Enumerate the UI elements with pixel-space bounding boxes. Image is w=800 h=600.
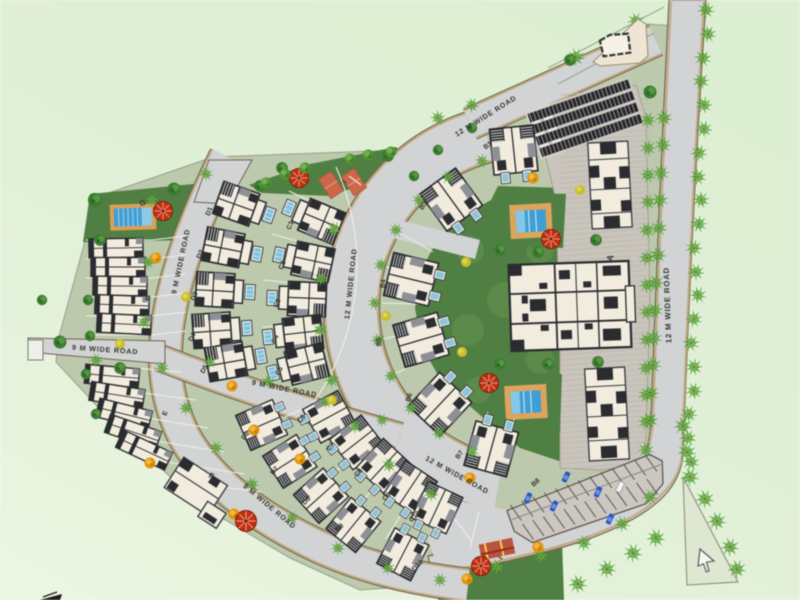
svg-text:B5: B5 xyxy=(376,337,383,346)
svg-text:B4: B4 xyxy=(379,279,387,289)
